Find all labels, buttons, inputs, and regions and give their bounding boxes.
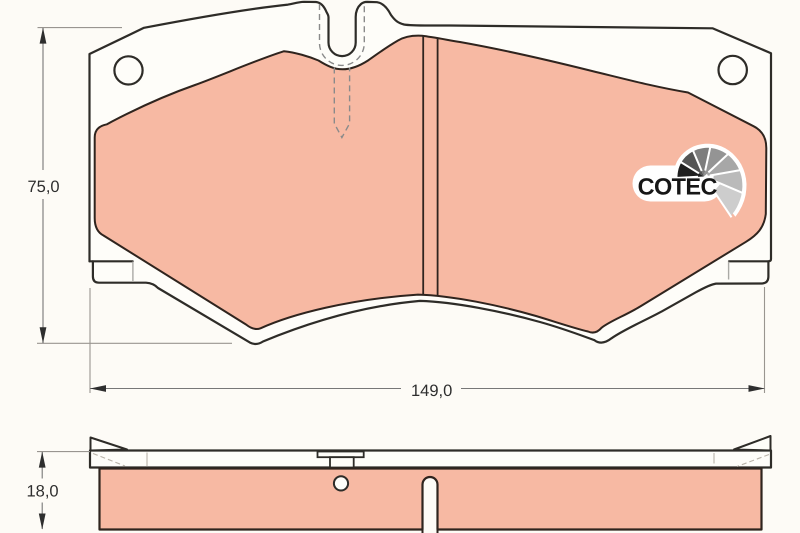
svg-text:18,0: 18,0	[27, 483, 59, 501]
svg-text:75,0: 75,0	[28, 178, 60, 196]
svg-text:COTEC: COTEC	[638, 173, 718, 199]
svg-text:149,0: 149,0	[411, 382, 452, 400]
